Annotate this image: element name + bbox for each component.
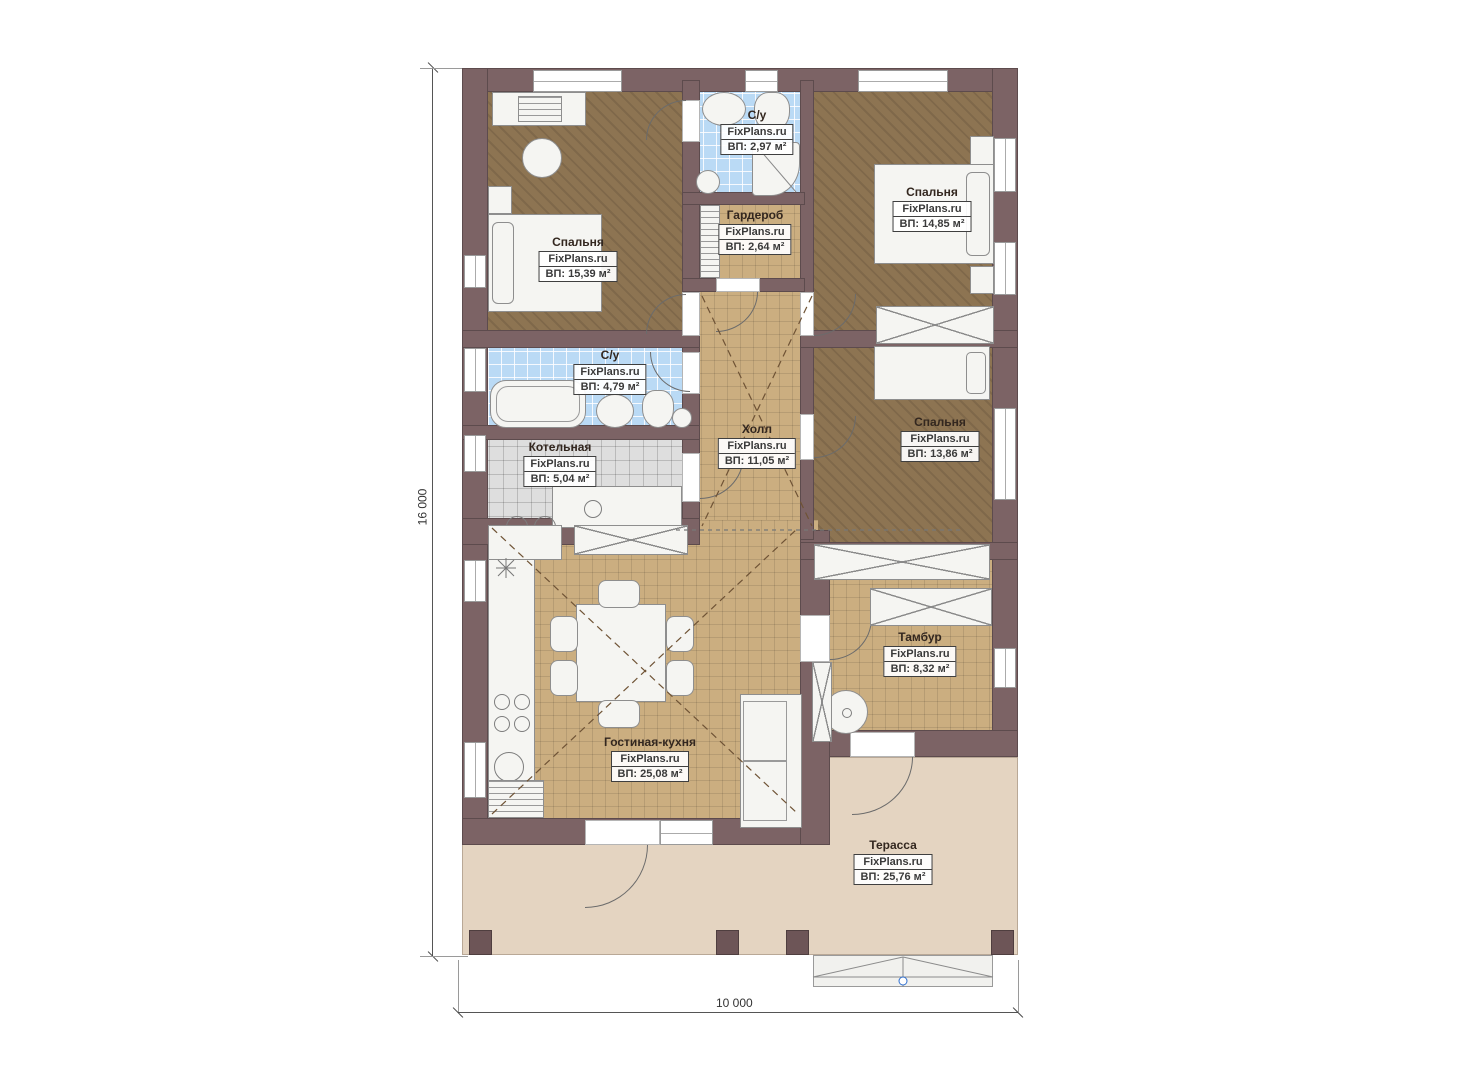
window-right-bedroom3: [994, 408, 1016, 500]
door-opening-boiler: [682, 453, 700, 502]
window-right-bedroom2-a: [994, 138, 1016, 192]
room-area: ВП: 8,32 м²: [884, 662, 955, 676]
wardrobe-cabinet: [876, 306, 994, 344]
brand-text: FixPlans.ru: [721, 125, 792, 140]
wardrobe-cabinet: [574, 525, 688, 555]
brand-text: FixPlans.ru: [524, 457, 595, 472]
sink: [596, 394, 634, 428]
room-area: ВП: 14,85 м²: [894, 217, 971, 231]
dimension-line-left: [432, 68, 433, 957]
dimension-label-bottom: 10 000: [716, 996, 753, 1010]
window-left-bedroom1: [464, 255, 486, 288]
room-label-bedroom1: Спальня FixPlans.ru ВП: 15,39 м²: [539, 235, 618, 282]
room-area: ВП: 2,97 м²: [721, 140, 792, 154]
pillow: [966, 352, 986, 394]
pillow: [492, 222, 514, 304]
room-name: Холл: [742, 422, 772, 436]
kitchen-sink: [494, 752, 524, 782]
nightstand: [488, 186, 512, 214]
room-label-terrace: Терасса FixPlans.ru ВП: 25,76 м²: [854, 838, 933, 885]
window-top-bedroom1: [533, 70, 622, 92]
boiler-counter: [552, 486, 682, 528]
brand-text: FixPlans.ru: [719, 225, 790, 240]
room-area: ВП: 25,08 м²: [612, 767, 689, 781]
room-area: ВП: 15,39 м²: [540, 267, 617, 281]
brand-text: FixPlans.ru: [894, 202, 971, 217]
printer: [518, 96, 562, 122]
room-label-bath2: С/у FixPlans.ru ВП: 4,79 м²: [573, 348, 646, 395]
wardrobe-cabinet: [814, 544, 990, 580]
room-label-living: Гостиная-кухня FixPlans.ru ВП: 25,08 м²: [604, 735, 696, 782]
wardrobe-shelving: [700, 205, 720, 278]
room-name: Гостиная-кухня: [604, 735, 696, 749]
chair: [666, 616, 694, 652]
window-right-bedroom2-b: [994, 242, 1016, 295]
stove-burner: [494, 716, 510, 732]
room-label-tambour: Тамбур FixPlans.ru ВП: 8,32 м²: [883, 630, 956, 677]
terrace-column: [786, 930, 809, 955]
door-opening-bedroom3: [800, 414, 814, 460]
brand-text: FixPlans.ru: [540, 252, 617, 267]
witness-line: [420, 956, 468, 957]
room-name: Спальня: [906, 185, 958, 199]
sofa-cushion: [743, 701, 787, 761]
wall-bath2-boiler: [462, 425, 700, 440]
office-chair: [522, 138, 562, 178]
brand-text: FixPlans.ru: [902, 432, 979, 447]
door-opening-wardrobe: [716, 278, 760, 292]
nightstand: [970, 266, 994, 294]
wardrobe-cabinet: [870, 588, 992, 626]
brand-text: FixPlans.ru: [884, 647, 955, 662]
room-area: ВП: 11,05 м²: [719, 454, 795, 468]
floor-drain: [672, 408, 692, 428]
wall-bath1-wardrobe: [682, 192, 805, 205]
sofa: [740, 694, 802, 828]
toilet: [642, 390, 674, 428]
window-left-bath2: [464, 348, 486, 392]
room-name: Терасса: [869, 838, 917, 852]
room-name: Спальня: [914, 415, 966, 429]
window-left-boiler: [464, 435, 486, 472]
room-area: ВП: 5,04 м²: [524, 472, 595, 486]
kitchen-counter-top: [488, 525, 562, 560]
room-area: ВП: 25,76 м²: [855, 870, 932, 884]
door-opening-terrace: [585, 820, 660, 845]
witness-line: [458, 960, 459, 1012]
window-left-kitchen: [464, 560, 486, 602]
dimension-label-left: 16 000: [415, 489, 429, 526]
bathtub: [490, 380, 586, 428]
porch-steps: [813, 955, 993, 987]
sofa-cushion: [743, 761, 787, 821]
stove-burner: [514, 716, 530, 732]
brand-text: FixPlans.ru: [574, 365, 645, 380]
room-name: Тамбур: [898, 630, 942, 644]
brand-text: FixPlans.ru: [719, 439, 795, 454]
chair: [598, 580, 640, 608]
dimension-line-bottom: [458, 1012, 1018, 1013]
floor-plan-canvas: Спальня FixPlans.ru ВП: 15,39 м² С/у Fix…: [0, 0, 1474, 1080]
room-area: ВП: 13,86 м²: [902, 447, 979, 461]
door-opening-tambour: [800, 615, 830, 662]
room-name: С/у: [748, 108, 767, 122]
room-name: Спальня: [552, 235, 604, 249]
oven: [488, 780, 544, 818]
brand-text: FixPlans.ru: [612, 752, 689, 767]
stove-burner: [514, 694, 530, 710]
witness-line: [1018, 960, 1019, 1012]
witness-line: [420, 68, 462, 69]
terrace-column: [991, 930, 1014, 955]
room-label-boiler: Котельная FixPlans.ru ВП: 5,04 м²: [523, 440, 596, 487]
room-label-bath1: С/у FixPlans.ru ВП: 2,97 м²: [720, 108, 793, 155]
window-right-tambour: [994, 648, 1016, 688]
chair: [598, 700, 640, 728]
room-label-bedroom2: Спальня FixPlans.ru ВП: 14,85 м²: [893, 185, 972, 232]
chair: [666, 660, 694, 696]
nightstand: [970, 136, 994, 166]
brand-text: FixPlans.ru: [855, 855, 932, 870]
closet: [812, 662, 832, 742]
window-top-bedroom2: [858, 70, 948, 92]
hall-floor: [688, 282, 814, 545]
room-name: Гардероб: [727, 208, 784, 222]
room-label-hall: Холл FixPlans.ru ВП: 11,05 м²: [718, 422, 796, 469]
window-top-bath1: [745, 70, 778, 92]
door-opening-bedroom2: [800, 292, 814, 336]
stove-burner: [494, 694, 510, 710]
terrace-column: [469, 930, 492, 955]
washing-machine: [696, 170, 720, 194]
door-opening-entry: [850, 732, 915, 757]
chair: [550, 660, 578, 696]
boiler-unit: [584, 500, 602, 518]
chair: [550, 616, 578, 652]
room-area: ВП: 2,64 м²: [719, 240, 790, 254]
dining-table: [576, 604, 666, 702]
room-label-wardrobe: Гардероб FixPlans.ru ВП: 2,64 м²: [718, 208, 791, 255]
window-left-living: [464, 742, 486, 798]
terrace-column: [716, 930, 739, 955]
room-name: Котельная: [529, 440, 592, 454]
window-bottom-living: [660, 820, 713, 845]
room-label-bedroom3: Спальня FixPlans.ru ВП: 13,86 м²: [901, 415, 980, 462]
room-area: ВП: 4,79 м²: [574, 380, 645, 394]
room-name: С/у: [601, 348, 620, 362]
